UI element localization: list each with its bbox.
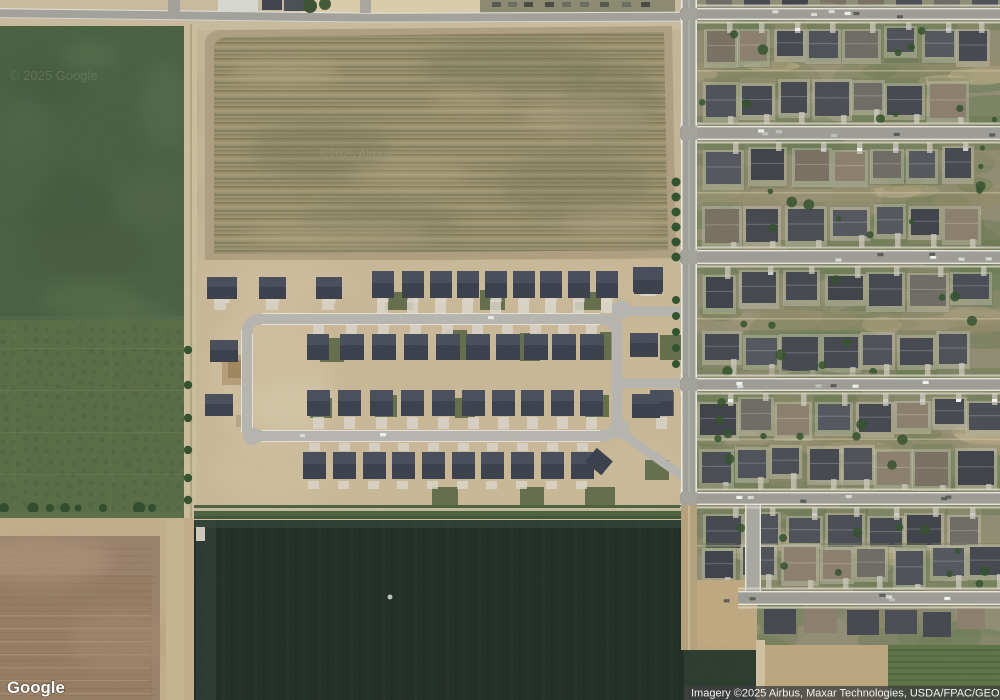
svg-text:Google: Google xyxy=(7,678,65,697)
svg-text:© 2025 Google: © 2025 Google xyxy=(10,68,98,83)
svg-text:Imagery ©2025 Airbus, Maxar Te: Imagery ©2025 Airbus, Maxar Technologies… xyxy=(691,688,1000,700)
svg-text:©2025 Airbus: ©2025 Airbus xyxy=(320,147,392,161)
